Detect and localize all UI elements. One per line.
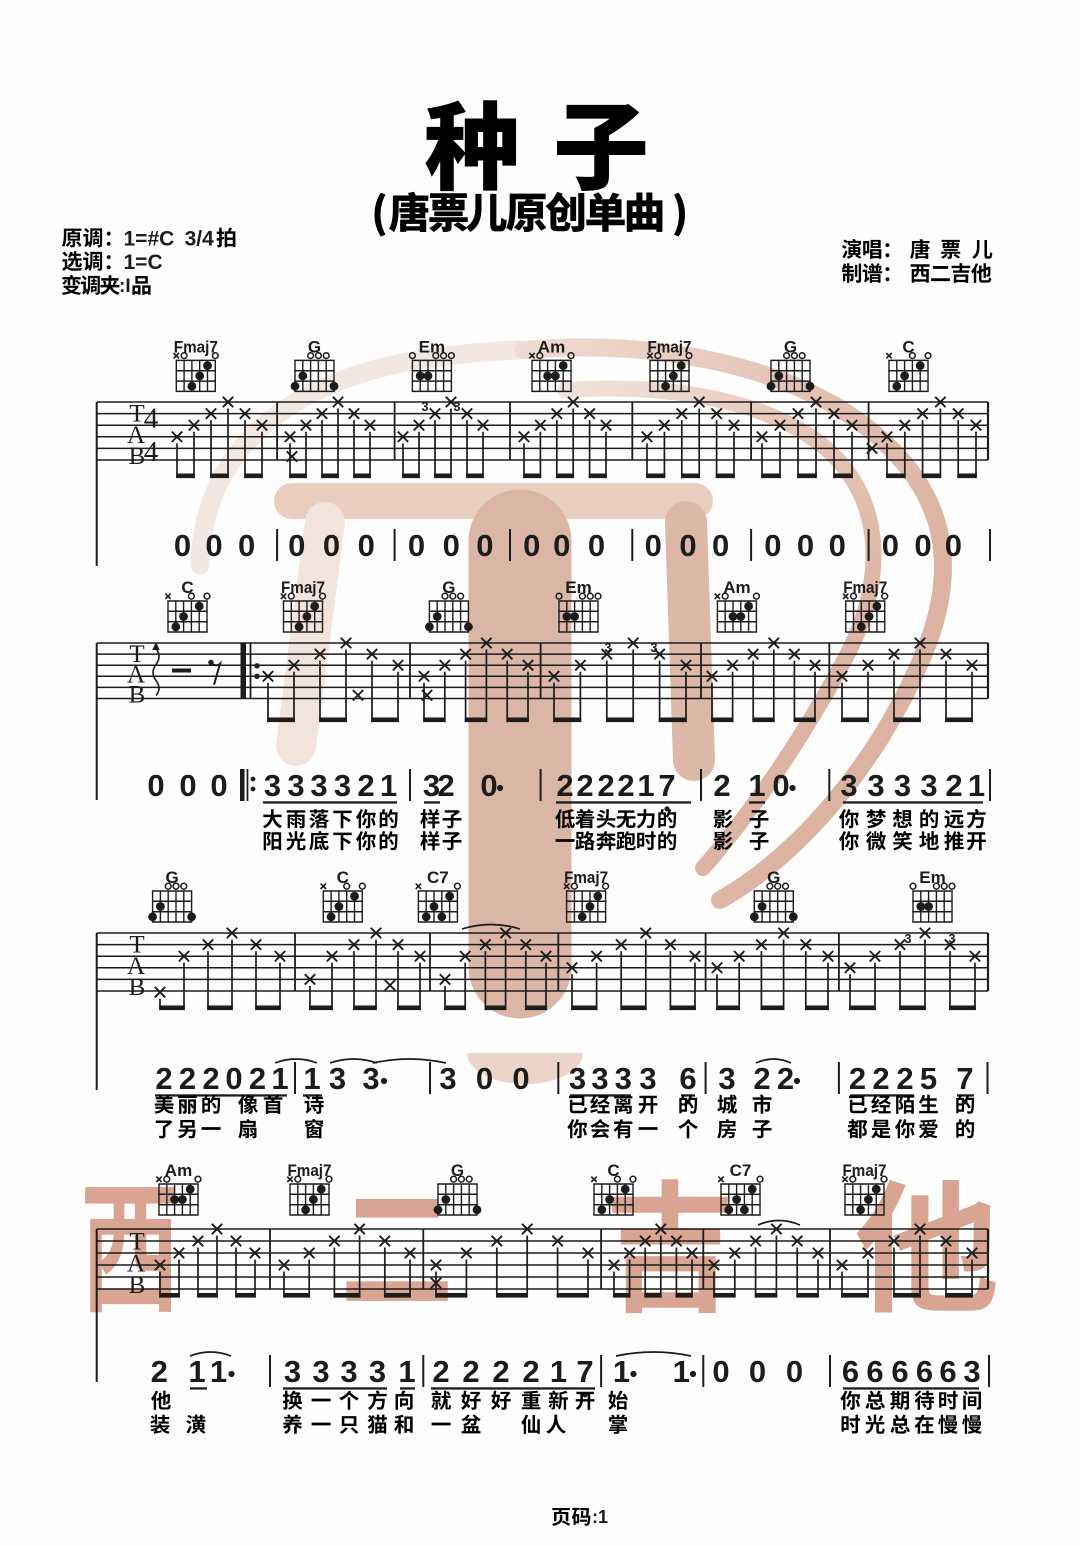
svg-text:2: 2: [357, 768, 374, 803]
svg-text:0: 0: [179, 768, 196, 803]
svg-text:0: 0: [553, 528, 570, 563]
svg-text:7: 7: [956, 1061, 973, 1096]
svg-text:1: 1: [271, 1061, 288, 1096]
svg-text:0: 0: [829, 528, 846, 563]
svg-text:6: 6: [891, 1354, 908, 1389]
svg-text:2: 2: [432, 1354, 449, 1389]
svg-text:2: 2: [151, 1354, 168, 1389]
svg-text:C: C: [902, 337, 914, 356]
svg-text:C: C: [181, 578, 193, 597]
svg-text:2: 2: [872, 1061, 889, 1096]
svg-text:2: 2: [753, 1061, 770, 1096]
svg-text:3: 3: [334, 768, 351, 803]
svg-text:0: 0: [443, 528, 460, 563]
svg-text:C: C: [607, 1161, 619, 1180]
svg-text:C: C: [337, 868, 349, 887]
svg-text:3: 3: [615, 1061, 632, 1096]
svg-text:0: 0: [225, 1061, 242, 1096]
svg-text:Fmaj7: Fmaj7: [843, 1161, 887, 1180]
svg-text:Fmaj7: Fmaj7: [288, 1161, 332, 1180]
svg-text:3: 3: [569, 1061, 586, 1096]
svg-text:3/4: 3/4: [185, 228, 215, 251]
svg-text:2: 2: [556, 768, 573, 803]
svg-text:0: 0: [512, 1061, 529, 1096]
svg-text:1: 1: [380, 768, 397, 803]
svg-text:3: 3: [639, 1061, 656, 1096]
svg-text:3: 3: [949, 932, 956, 946]
svg-text:3: 3: [718, 1061, 735, 1096]
svg-text:0: 0: [712, 1354, 729, 1389]
svg-text:2: 2: [896, 1061, 913, 1096]
svg-text:0: 0: [323, 528, 340, 563]
svg-text:0: 0: [476, 1061, 493, 1096]
svg-text:Fmaj7: Fmaj7: [648, 337, 692, 356]
svg-text:B: B: [129, 1272, 146, 1299]
svg-text:1: 1: [968, 768, 985, 803]
svg-text:Fmaj7: Fmaj7: [843, 578, 887, 597]
svg-text:0: 0: [205, 528, 222, 563]
svg-text:2: 2: [617, 768, 634, 803]
svg-text:1=C: 1=C: [124, 251, 163, 274]
svg-text:3: 3: [840, 768, 857, 803]
svg-text:6: 6: [679, 1061, 696, 1096]
svg-text:0: 0: [210, 768, 227, 803]
svg-text:0: 0: [772, 768, 789, 803]
svg-text:1: 1: [637, 768, 654, 803]
svg-text:0: 0: [147, 768, 164, 803]
svg-text:3: 3: [963, 1354, 980, 1389]
svg-text:Fmaj7: Fmaj7: [281, 578, 325, 597]
svg-text:2: 2: [492, 1354, 509, 1389]
svg-text:3: 3: [310, 768, 327, 803]
svg-text:0: 0: [476, 528, 493, 563]
svg-text:4: 4: [144, 436, 159, 468]
svg-text:3: 3: [369, 1354, 386, 1389]
svg-text:2: 2: [522, 1354, 539, 1389]
svg-text:2: 2: [849, 1061, 866, 1096]
svg-text:0: 0: [749, 1354, 766, 1389]
svg-text:3: 3: [422, 400, 429, 414]
svg-text:0: 0: [914, 528, 931, 563]
svg-text:3: 3: [605, 641, 612, 655]
svg-text:3: 3: [439, 1061, 456, 1096]
svg-text:0: 0: [797, 528, 814, 563]
svg-text:3: 3: [362, 1061, 379, 1096]
svg-text:3: 3: [920, 768, 937, 803]
svg-text:6: 6: [939, 1354, 956, 1389]
svg-text:0: 0: [945, 528, 962, 563]
svg-text:5: 5: [920, 1061, 937, 1096]
svg-text:3: 3: [651, 641, 658, 655]
svg-text:2: 2: [777, 1061, 794, 1096]
svg-text::I: :I: [119, 276, 131, 297]
svg-text:1: 1: [188, 1354, 205, 1389]
svg-text:0: 0: [679, 528, 696, 563]
svg-text:1: 1: [613, 1354, 630, 1389]
svg-text:3: 3: [454, 400, 461, 414]
svg-text:2: 2: [437, 768, 454, 803]
svg-text:0: 0: [712, 528, 729, 563]
svg-text:7: 7: [576, 1354, 593, 1389]
svg-text:0: 0: [288, 528, 305, 563]
svg-text:2: 2: [597, 768, 614, 803]
svg-text:1: 1: [550, 1354, 567, 1389]
svg-text:1: 1: [303, 1061, 320, 1096]
svg-text:3: 3: [264, 768, 281, 803]
svg-text:6: 6: [866, 1354, 883, 1389]
svg-text:B: B: [129, 681, 146, 708]
svg-text:7: 7: [658, 768, 675, 803]
svg-text:Fmaj7: Fmaj7: [174, 337, 218, 356]
svg-text:0: 0: [523, 528, 540, 563]
svg-text:1: 1: [673, 1354, 690, 1389]
svg-text:0: 0: [645, 528, 662, 563]
svg-text:0: 0: [882, 528, 899, 563]
svg-text:1: 1: [398, 1354, 415, 1389]
svg-text:2: 2: [179, 1061, 196, 1096]
svg-text:2: 2: [945, 768, 962, 803]
svg-text:0: 0: [764, 528, 781, 563]
svg-text:3: 3: [340, 1354, 357, 1389]
svg-text:2: 2: [576, 768, 593, 803]
svg-text:B: B: [129, 974, 146, 1001]
svg-text:0: 0: [786, 1354, 803, 1389]
svg-text:C7: C7: [730, 1161, 752, 1180]
svg-text:3: 3: [867, 768, 884, 803]
svg-text:Fmaj7: Fmaj7: [564, 868, 608, 887]
svg-text:3: 3: [284, 1354, 301, 1389]
svg-text:6: 6: [916, 1354, 933, 1389]
svg-text:1: 1: [748, 768, 765, 803]
svg-text:0: 0: [408, 528, 425, 563]
svg-text:6: 6: [842, 1354, 859, 1389]
svg-text::1: :1: [592, 1507, 608, 1527]
svg-text:4: 4: [144, 403, 159, 435]
svg-text:2: 2: [462, 1354, 479, 1389]
svg-text:0: 0: [358, 528, 375, 563]
svg-text:3: 3: [312, 1354, 329, 1389]
svg-text:3: 3: [894, 768, 911, 803]
svg-text:2: 2: [202, 1061, 219, 1096]
svg-text:3: 3: [329, 1061, 346, 1096]
svg-text:0: 0: [174, 528, 191, 563]
svg-text:1: 1: [210, 1354, 227, 1389]
svg-text:3: 3: [287, 768, 304, 803]
svg-text:0: 0: [588, 528, 605, 563]
svg-text:2: 2: [713, 768, 730, 803]
svg-text:3: 3: [591, 1061, 608, 1096]
svg-text:1=#C: 1=#C: [124, 228, 175, 251]
svg-text:2: 2: [249, 1061, 266, 1096]
svg-text:C7: C7: [427, 868, 449, 887]
svg-text:2: 2: [155, 1061, 172, 1096]
svg-text:0: 0: [480, 768, 497, 803]
svg-text:3: 3: [905, 932, 912, 946]
svg-text:0: 0: [238, 528, 255, 563]
